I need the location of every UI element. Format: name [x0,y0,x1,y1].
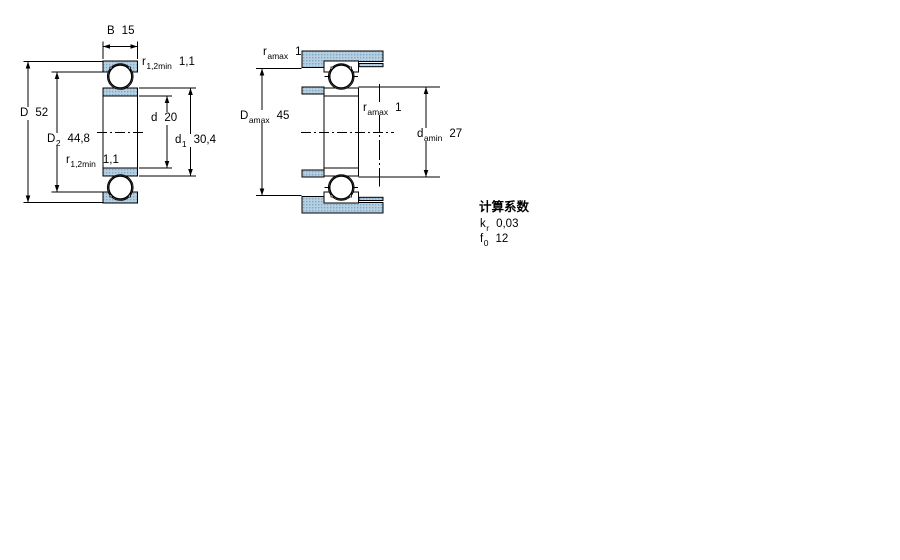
shaft-shoulder-top [302,87,324,94]
bearing-diagram-canvas [0,0,900,560]
shaft-shoulder-bottom [302,170,324,177]
left-view-cross-section [97,61,144,203]
dim-label-damin: damin27 [416,128,463,141]
dimension-arrowheads [26,44,429,202]
dim-label-r12min-bottom: r1,2min1,1 [66,154,119,167]
calc-row-kr: kr0,03 [480,218,518,231]
dim-label-d1: d130,4 [174,134,217,147]
dim-label-D: D52 [19,107,49,120]
dim-label-B: B15 [107,25,134,38]
dim-label-D2: D244,8 [46,133,91,146]
dim-label-d: d20 [150,112,178,125]
bearing-technical-drawing: B15 r1,2min1,1 D52 D244,8 r1,2min1,1 d20… [0,0,900,560]
calc-factors-title: 计算系数 [479,196,529,215]
right-view-mounting-section [301,51,394,213]
dim-label-ramax-mid: ramax1 [362,102,403,115]
dim-label-ramax-top: ramax1 [263,46,302,59]
housing-strip-top [359,64,383,67]
dim-label-r12min-top: r1,2min1,1 [142,56,195,69]
calc-row-f0: f012 [480,233,508,246]
housing-strip-bottom [359,197,383,200]
dim-label-Damax: Damax45 [239,110,290,123]
